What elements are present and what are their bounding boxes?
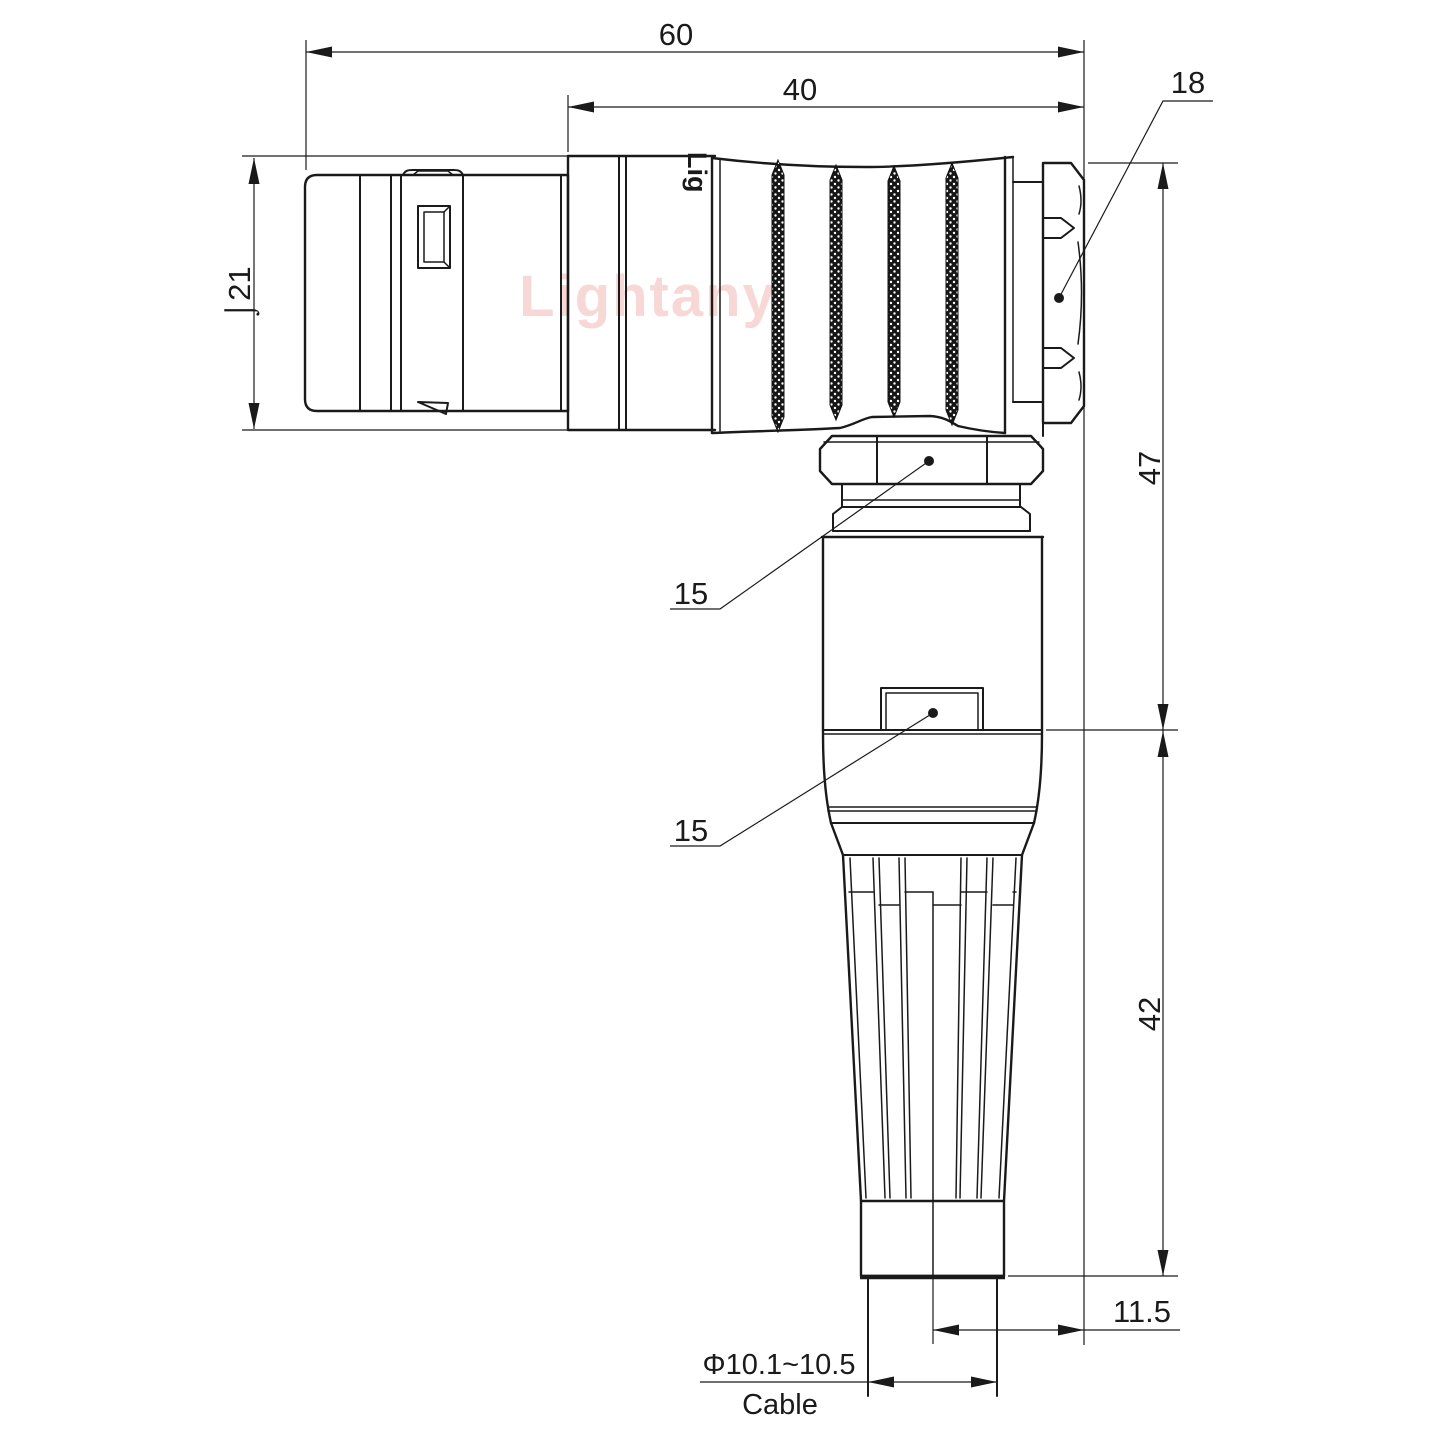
dimension-upper-height: 47 [1088,163,1178,730]
keyway-window [418,206,450,268]
dimension-body-length: 40 [568,72,1084,152]
knurl-bottom-edge [712,416,1005,433]
arrow-left [868,1377,894,1388]
dim-text-cable-dia: Φ10.1~10.5 [703,1349,856,1381]
hex-nut-arc-3 [1079,372,1081,400]
rib-c2 [960,858,967,1198]
flange-right [1021,507,1030,531]
dim-text-42: 42 [1132,997,1167,1031]
rib-d1 [977,858,987,1198]
dimension-cable-diameter: Φ10.1~10.5 Cable [700,1349,997,1421]
arrow-left [933,1325,959,1336]
technical-drawing-page: Lightany Lig [0,0,1440,1440]
elbow-body [820,436,1043,1396]
knurl-strip-2 [830,165,842,420]
arrow-right [1058,102,1084,113]
arrow-right [971,1377,997,1388]
leader-gland-nut-15: 15 [670,456,934,611]
dim-text-47: 47 [1132,451,1167,485]
leader-line [1059,101,1213,298]
arrow-up [1158,163,1169,189]
knurl-strip-1 [772,160,784,432]
neck [1013,182,1043,436]
dimension-lower-height: 42 [1008,730,1178,1276]
arrow-right [1058,47,1084,58]
connector-drawing: Lightany Lig [0,0,1440,1440]
leader-hex-nut-18: 18 [1054,65,1213,303]
arrow-down [1158,1250,1169,1276]
dim-text-15a: 15 [674,576,708,611]
arrow-right [1058,1325,1084,1336]
main-body [822,537,1043,823]
strain-relief [843,855,1022,1201]
arrow-down [1158,704,1169,730]
end-cap [860,1201,1005,1277]
rib-c1 [956,858,961,1198]
dim-text-11-5: 11.5 [1113,1294,1171,1329]
hex-nut-outline [1043,163,1084,423]
shoulder-sides [831,823,1034,855]
hex-nut-facet-top [1043,218,1074,238]
flange-ring [833,507,1030,531]
shoulder-cone [831,823,1034,855]
arrow-left [568,102,594,113]
hex-nut-arc-1 [1079,186,1081,214]
dimension-front-diameter: ⌡21 [222,156,570,430]
knurl-strip-4 [946,163,958,425]
knurl-top-edge [712,157,1013,167]
rib-a2 [879,858,890,1198]
hex-nut-facet-bottom [1043,348,1074,368]
arrow-down [249,403,260,429]
rib-b1 [899,858,906,1198]
watermark-text: Lightany [519,264,777,329]
cable-caption: Cable [742,1389,818,1421]
dimension-cable-offset: 11.5 [933,1279,1180,1344]
engraving-text: Lig [682,152,712,193]
arrow-left [306,47,332,58]
dim-text-40: 40 [783,72,817,107]
dim-text-18: 18 [1171,65,1205,100]
dimensions: 60 40 ⌡21 47 [222,17,1180,1421]
leader-line [670,713,933,846]
dim-text-15b: 15 [674,813,708,848]
rib-a1 [873,858,885,1198]
knurl-strip-3 [888,166,900,417]
arrow-up [1158,731,1169,757]
lower-body-sides [823,734,1042,823]
rib-d2 [981,858,993,1198]
keyway-floor [424,212,444,262]
dim-text-d21: ⌡21 [222,266,260,319]
body-sides [823,537,1042,733]
rib-b2 [905,858,911,1198]
hex-nut [1043,163,1084,423]
arrow-up [249,158,260,184]
dimension-overall-length: 60 [306,17,1084,1345]
dim-text-60: 60 [659,17,693,52]
